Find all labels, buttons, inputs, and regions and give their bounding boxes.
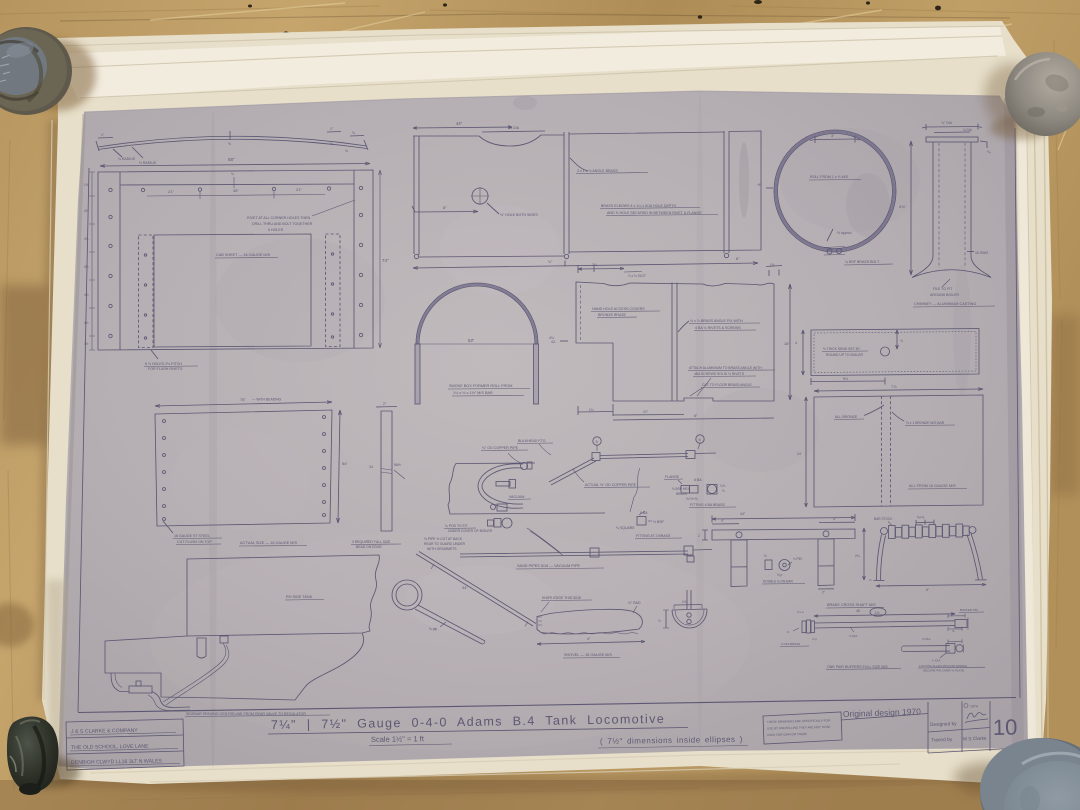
svg-text:21": 21" [296,187,302,192]
svg-text:CAB SHEET — 16 GAUGE M/S: CAB SHEET — 16 GAUGE M/S [216,253,271,257]
svg-text:⅜: ⅜ [722,489,725,493]
svg-text:ACTUAL ⅜" OD COPPER PIPE: ACTUAL ⅜" OD COPPER PIPE [585,483,637,487]
svg-text:⅞ x ¾ SLOT: ⅞ x ¾ SLOT [628,274,646,278]
svg-text:⅛ x ⅞ BRASS ANGLE FIX WITH: ⅛ x ⅞ BRASS ANGLE FIX WITH [690,319,743,323]
svg-text:AND ⅝ HOLE SECURED IN BETWEEN: AND ⅝ HOLE SECURED IN BETWEEN RIVET & FL… [607,211,702,215]
svg-text:¼": ¼" [548,260,553,264]
svg-text:4⅛: 4⅛ [84,321,89,325]
svg-text:4¾": 4¾" [899,204,907,209]
svg-text:DRILL THRU AND BOLT TOGETHER: DRILL THRU AND BOLT TOGETHER [252,222,313,226]
svg-text:Traced by: Traced by [931,737,953,744]
svg-text:1¾: 1¾ [589,408,594,412]
svg-text:4: 4 [795,341,797,345]
svg-text:CUT TO FLOOR BRASS ANGLE: CUT TO FLOOR BRASS ANGLE [702,383,752,387]
svg-text:SMOKE BOX FORMER ROLL FROM: SMOKE BOX FORMER ROLL FROM [449,384,512,388]
svg-text:⅝ DIA: ⅝ DIA [849,634,857,638]
svg-text:ATTACH ALUMINIUM TO BRASS ANGL: ATTACH ALUMINIUM TO BRASS ANGLE WITH [689,366,762,370]
svg-text:½: ½ [330,142,333,146]
svg-text:24: 24 [797,452,801,456]
svg-text:WITH GROMMETS: WITH GROMMETS [427,547,457,551]
svg-text:1½: 1½ [682,600,687,604]
svg-text:AROUND BOILER: AROUND BOILER [930,293,959,297]
svg-text:VACUUM: VACUUM [509,495,524,499]
svg-text:BEAD ON EDGE: BEAD ON EDGE [356,545,383,549]
svg-text:2¼: 2¼ [855,554,860,558]
svg-text:1⅝: 1⅝ [770,263,775,267]
svg-text:⅞: ⅞ [900,339,903,343]
svg-text:1974: 1974 [970,705,978,709]
svg-text:46: 46 [856,609,860,613]
svg-text:ACTUAL SIZE — 16 GAUGE M/S: ACTUAL SIZE — 16 GAUGE M/S [240,541,298,545]
svg-text:⅛ BSP: ⅛ BSP [653,520,665,524]
svg-text:RH SIDE TANK: RH SIDE TANK [286,595,313,599]
svg-text:8": 8" [443,205,447,210]
svg-text:4 BA ¼ RIVETS & SCREWS: 4 BA ¼ RIVETS & SCREWS [695,326,741,330]
svg-text:⅝ DIA: ⅝ DIA [922,637,930,641]
svg-text:¾ DIA: ¾ DIA [932,659,940,663]
svg-text:ALL BRONZE: ALL BRONZE [835,415,858,419]
svg-text:44": 44" [462,585,468,590]
svg-text:DOUBLE ⅛ ON BAR: DOUBLE ⅛ ON BAR [763,580,793,584]
svg-text:36": 36" [233,188,239,193]
svg-text:¾ BSP HEX: ¾ BSP HEX [672,487,690,491]
svg-text:⅞: ⅞ [658,619,661,623]
svg-text:CHIMNEY — ALUMINIUM CASTING: CHIMNEY — ALUMINIUM CASTING [914,302,976,306]
svg-text:3 x 1 x ⅛ ANGLE BRASS: 3 x 1 x ⅛ ANGLE BRASS [577,169,618,173]
svg-text:56½: 56½ [394,463,401,467]
svg-text:SAND PIPES 5/16 — VACUUM PIPE: SAND PIPES 5/16 — VACUUM PIPE [517,564,580,568]
svg-text:53": 53" [468,338,475,343]
svg-text:2: 2 [698,534,700,538]
svg-text:4⅛: 4⅛ [84,265,89,269]
svg-text:15 DIA: 15 DIA [508,126,520,130]
svg-text:ROLL FROM 1 x ⅛ M/S: ROLL FROM 1 x ⅛ M/S [810,175,849,179]
svg-text:⅛" OD COPPER PIPE: ⅛" OD COPPER PIPE [482,446,519,450]
svg-text:74": 74" [382,258,389,263]
svg-text:⅛ THICK SEND SET BY: ⅛ THICK SEND SET BY [823,347,861,351]
svg-text:21": 21" [643,410,649,414]
svg-text:KNIFE EDGE THIS SIDE: KNIFE EDGE THIS SIDE [542,596,582,600]
svg-text:¼ RADIUS: ¼ RADIUS [118,157,136,161]
svg-text:¾⅞: ¾⅞ [720,484,726,488]
svg-text:1¼ x ⅛ x 1½″ M/S BAR: 1¼ x ⅛ x 1½″ M/S BAR [453,391,493,395]
svg-text:⅛ RADIUS: ⅛ RADIUS [139,161,157,165]
svg-text:ALL FROM 16 GAUGE M/S: ALL FROM 16 GAUGE M/S [909,484,956,488]
svg-text:⅝+⅞: ⅝+⅞ [797,610,804,614]
svg-text:42-: 42- [551,340,557,344]
svg-text:4BA SCREWS SOLID ⅛ RIVETS: 4BA SCREWS SOLID ⅛ RIVETS [694,372,745,376]
svg-text:2": 2" [822,591,825,595]
svg-text:FITTING AT 2 BRASS: FITTING AT 2 BRASS [636,534,671,538]
svg-text:¼" RAD: ¼" RAD [628,601,641,605]
svg-text:BRAKE CROSS SHAFT M/S: BRAKE CROSS SHAFT M/S [827,603,876,607]
svg-text:5½: 5½ [843,377,848,381]
svg-text:7⅞: 7⅞ [891,384,897,389]
svg-text:¾ pip: ¾ pip [429,627,437,631]
svg-text:6 HOLES: 6 HOLES [268,228,284,232]
svg-text:4⅛: 4⅛ [84,237,89,241]
svg-text:— WITH BEADING: — WITH BEADING [252,398,282,402]
svg-text:6 BA: 6 BA [694,478,702,482]
svg-text:Designed by: Designed by [930,721,957,728]
svg-text:¾ SQUARE: ¾ SQUARE [616,526,635,530]
svg-text:RIVET AT ALL CORNER HOLES THEN: RIVET AT ALL CORNER HOLES THEN [247,216,311,220]
svg-text:SHOVEL — 16 GAUGE M/S: SHOVEL — 16 GAUGE M/S [564,653,612,657]
svg-text:⅝: ⅝ [228,142,231,146]
svg-text:1½: 1½ [875,611,880,615]
svg-text:¼ PIN: ¼ PIN [793,557,803,561]
svg-text:SECURE PIN OVER ⅛ PLATE: SECURE PIN OVER ⅛ PLATE [923,669,964,673]
svg-text:4": 4" [833,518,836,522]
svg-text:HAND HOLE ACCESS COVERS: HAND HOLE ACCESS COVERS [592,307,645,311]
svg-text:2⅛: 2⅛ [592,263,597,267]
svg-text:⅜ p: ⅜ p [777,573,783,577]
svg-text:⅛ PIPE ½ CUT AT BACK: ⅛ PIPE ½ CUT AT BACK [424,537,463,541]
svg-text:⅛+⅛+⅛: ⅛+⅛+⅛ [686,497,698,501]
svg-text:¾: ¾ [345,149,348,153]
svg-text:BRASS ELBOWS 4 x 1¼ x 5/16 HOL: BRASS ELBOWS 4 x 1¼ x 5/16 HOLE DEPTH [601,204,677,208]
svg-text:BUFFER PIN: BUFFER PIN [960,608,978,612]
svg-text:6 ⅜ HOLES 2⅛ PITCH: 6 ⅜ HOLES 2⅛ PITCH [145,362,182,366]
svg-text:16 SWG: 16 SWG [975,251,989,255]
svg-text:BULKHEAD FTG: BULKHEAD FTG [518,439,546,443]
svg-text:68": 68" [228,157,235,162]
svg-text:⅛" HOLE BOTH SIDES: ⅛" HOLE BOTH SIDES [500,213,538,217]
svg-text:⅛: ⅛ [764,554,767,558]
svg-text:+R: +R [757,183,762,187]
svg-text:75": 75" [240,397,246,402]
svg-text:¾ DIA: ¾ DIA [963,128,973,132]
svg-text:¾: ¾ [231,172,234,176]
svg-text:M S Clarke: M S Clarke [963,736,987,743]
svg-text:34: 34 [369,465,373,469]
svg-text:⅝ p: ⅝ p [812,637,817,641]
svg-text:4¾: 4¾ [549,336,554,340]
svg-text:FOR FLUSH RIVETS: FOR FLUSH RIVETS [148,367,183,371]
svg-text:BAR STOCK: BAR STOCK [874,517,893,521]
svg-text:16 GAUGE ST STEEL: 16 GAUGE ST STEEL [174,534,210,538]
svg-text:21": 21" [168,189,174,194]
svg-text:¾: ¾ [352,131,355,135]
svg-text:FLANGE: FLANGE [665,475,680,479]
svg-text:3 REQUIRED FULL SIZE: 3 REQUIRED FULL SIZE [352,540,391,544]
svg-text:44": 44" [740,512,746,516]
svg-text:⅜ approx: ⅜ approx [837,231,852,235]
svg-text:1½: 1½ [84,342,89,346]
svg-text:⅝+⅝: ⅝+⅝ [917,516,925,520]
svg-text:¼ POD TO FIT: ¼ POD TO FIT [445,524,468,528]
svg-text:REAR TO GUARD UNDER: REAR TO GUARD UNDER [424,542,466,546]
svg-text:54": 54" [342,461,348,466]
svg-text:ONE PAIR BUFFERS FULL SIZE M/S: ONE PAIR BUFFERS FULL SIZE M/S [827,665,888,669]
svg-text:UNDER COVER OF BOILER: UNDER COVER OF BOILER [448,529,493,533]
svg-text:⅛ x 1 BRONZE M/S BAR: ⅛ x 1 BRONZE M/S BAR [906,421,945,425]
svg-text:⅞" DIA: ⅞" DIA [941,121,953,125]
svg-text:FILE TO FIT: FILE TO FIT [933,287,953,291]
svg-text:3": 3" [831,133,835,138]
svg-text:CUT FLUSH ON TOP: CUT FLUSH ON TOP [177,540,212,544]
svg-text:44": 44" [456,121,463,126]
svg-text:BRASS: BRASS [676,492,687,496]
svg-text:10: 10 [993,715,1018,740]
svg-text:4": 4" [721,519,724,523]
svg-text:18": 18" [784,341,790,346]
svg-text:BRONZE BRAZE: BRONZE BRAZE [598,313,627,317]
svg-text:FITTING 4 BA BRASS: FITTING 4 BA BRASS [690,503,725,507]
svg-text:⅝ DIA BRASS: ⅝ DIA BRASS [781,642,800,646]
svg-text:1½: 1½ [84,183,89,187]
svg-text:¼ BSF BRASS BOLT: ¼ BSF BRASS BOLT [845,260,880,264]
svg-text:Scale 1½" = 1 ft: Scale 1½" = 1 ft [371,734,425,744]
svg-text:ROUND UP TO BOILER: ROUND UP TO BOILER [826,353,863,357]
svg-text:8": 8" [736,256,740,261]
